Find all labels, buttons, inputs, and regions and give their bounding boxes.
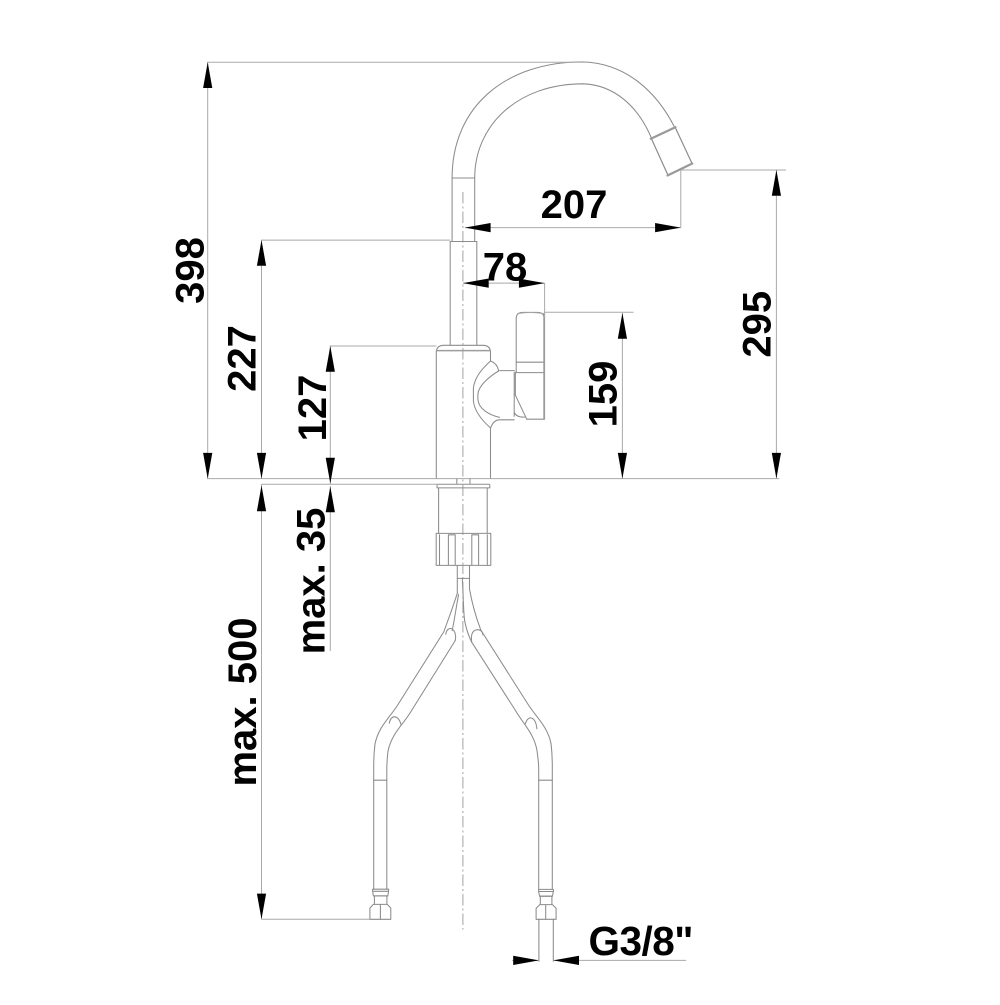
svg-text:G3/8": G3/8" — [589, 918, 694, 964]
svg-text:295: 295 — [736, 291, 780, 358]
svg-text:159: 159 — [582, 361, 626, 428]
svg-text:max. 35: max. 35 — [290, 508, 334, 655]
svg-text:227: 227 — [221, 325, 265, 392]
svg-text:398: 398 — [168, 237, 212, 304]
svg-text:78: 78 — [483, 246, 528, 290]
svg-text:207: 207 — [541, 183, 608, 227]
svg-text:127: 127 — [291, 375, 335, 442]
svg-text:max. 500: max. 500 — [221, 617, 265, 786]
